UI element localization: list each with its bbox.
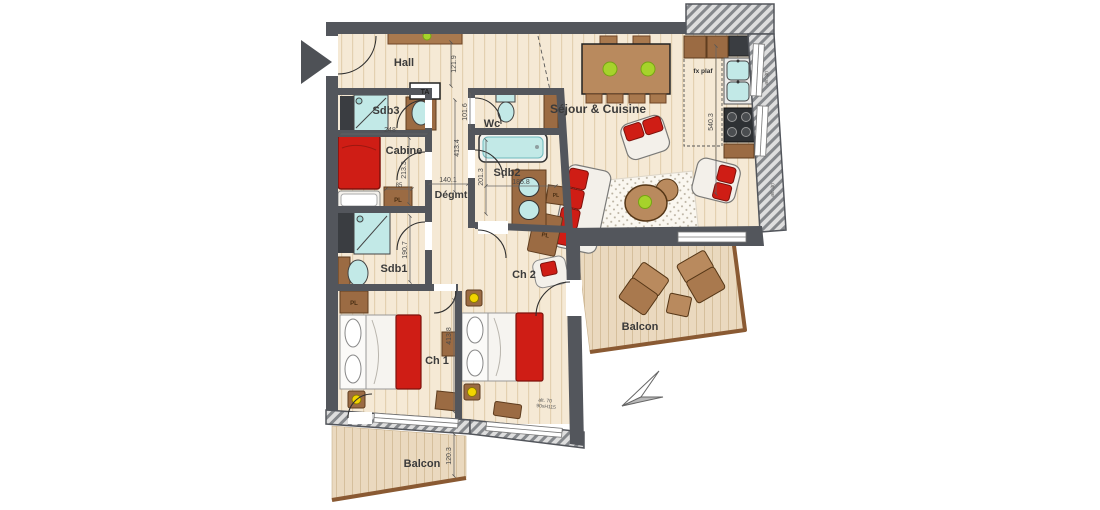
dim-couloir: 413.4: [454, 139, 461, 157]
double-bed-icon: [340, 315, 421, 389]
label-ta: TA: [421, 89, 430, 96]
label-pl: PL: [394, 198, 402, 204]
floor-plan-svg: Hall Sdb3 Cabine Sdb1 Wc Sdb2 Dégmt Séjo…: [0, 0, 1100, 510]
dim-cuisine: 540.3: [708, 113, 715, 131]
label-wc: Wc: [484, 118, 501, 130]
dim-cabine-larg: 248: [384, 127, 396, 134]
dim-sdb1: 190.7: [402, 241, 409, 259]
side-table-icon: [666, 293, 692, 317]
plant-icon: [641, 62, 655, 76]
shower-icon: [338, 212, 390, 254]
wall-note: alt. 30: [764, 71, 771, 85]
label-hall: Hall: [394, 57, 414, 69]
plant-icon: [603, 62, 617, 76]
kitchen-counters: [684, 36, 755, 58]
label-sdb1: Sdb1: [381, 263, 408, 275]
plant-icon: [639, 196, 652, 209]
balcony-east-floor: [577, 238, 745, 352]
floor-plan-canvas: Hall Sdb3 Cabine Sdb1 Wc Sdb2 Dégmt Séjo…: [0, 0, 1100, 510]
label-balcon-sud: Balcon: [404, 458, 441, 470]
stove-icon: [724, 108, 754, 158]
bedside-lamp-icon: [464, 384, 480, 400]
bedside-lamp-icon: [466, 290, 482, 306]
dim-sdb2-larg: 185.8: [512, 179, 530, 186]
dim-cabine-prof: 213.3: [401, 161, 408, 179]
label-ch2: Ch 2: [512, 269, 536, 281]
label-sdb3: Sdb3: [373, 105, 400, 117]
dim-degmt: 140.1: [439, 177, 457, 184]
dim-balcon: 120.3: [446, 447, 453, 465]
bathtub-icon: [479, 133, 547, 162]
label-pl: PL: [350, 301, 358, 307]
label-sejour-cuisine: Séjour & Cuisine: [550, 102, 646, 116]
dim-placard: 85: [396, 183, 403, 189]
label-pl: PL: [553, 193, 559, 199]
dining-table-icon: [582, 36, 670, 103]
label-balcon-est: Balcon: [622, 321, 659, 333]
label-sdb2: Sdb2: [494, 167, 521, 179]
label-fx-plaf: fx plaf: [693, 68, 713, 75]
wall-note: alt. 30: [770, 183, 777, 197]
dim-hall: 121.9: [451, 55, 458, 73]
kitchen-sink-icon: [724, 58, 752, 104]
double-bed-icon: [462, 313, 543, 381]
label-degmt: Dégmt: [435, 189, 468, 201]
dim-sdb2-prof: 201.3: [478, 168, 485, 186]
dim-ch1: 413.8: [446, 327, 453, 345]
dim-wc: 101.6: [462, 103, 469, 121]
label-ch1: Ch 1: [425, 355, 449, 367]
label-cabine: Cabine: [386, 145, 423, 157]
north-arrow-icon: [622, 371, 663, 406]
